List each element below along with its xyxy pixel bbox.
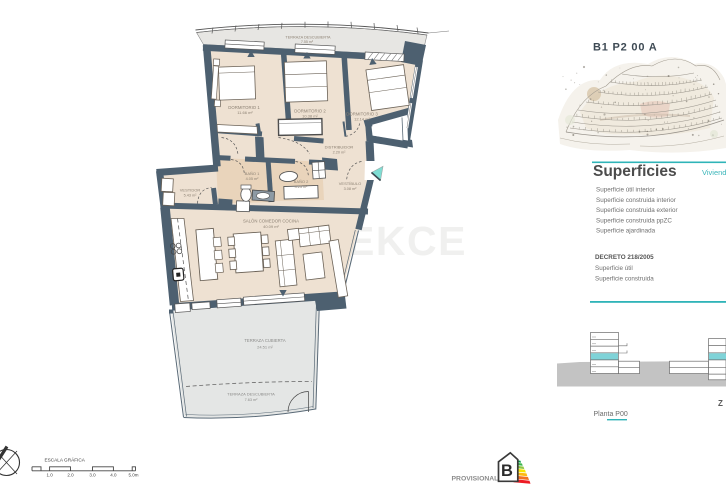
svg-text:Superficie construida exterior: Superficie construida exterior [596, 207, 678, 214]
svg-text:BAÑO 2: BAÑO 2 [294, 179, 309, 184]
svg-text:Superficie construida: Superficie construida [595, 275, 654, 282]
svg-text:40.09 m²: 40.09 m² [263, 224, 279, 229]
svg-text:Z: Z [718, 399, 723, 408]
svg-text:BAÑO 1: BAÑO 1 [245, 171, 260, 176]
svg-text:3.0: 3.0 [89, 473, 96, 478]
svg-text:B1 P2 00 A: B1 P2 00 A [593, 42, 657, 54]
svg-text:Viviend: Viviend [702, 168, 726, 177]
svg-text:5.43 m²: 5.43 m² [184, 194, 198, 198]
svg-text:Planta P00: Planta P00 [594, 411, 628, 418]
svg-text:24.51 m²: 24.51 m² [257, 345, 273, 350]
svg-text:VESTIDOR: VESTIDOR [180, 188, 201, 193]
svg-text:1.0: 1.0 [46, 473, 53, 478]
svg-text:ESCALA GRÁFICA: ESCALA GRÁFICA [45, 457, 86, 463]
svg-text:Superficie construida interior: Superficie construida interior [596, 197, 676, 204]
svg-text:4.23 m²: 4.23 m² [295, 185, 309, 189]
svg-text:3.08 m²: 3.08 m² [344, 187, 358, 191]
svg-text:Superficie construida ppZC: Superficie construida ppZC [596, 217, 672, 224]
svg-text:DISTRIBUIDOR: DISTRIBUIDOR [325, 145, 354, 150]
svg-text:VESTÍBULO: VESTÍBULO [339, 181, 361, 186]
svg-text:12.14 m²: 12.14 m² [354, 117, 370, 122]
svg-text:B: B [501, 462, 513, 480]
svg-text:Superficie útil: Superficie útil [595, 265, 633, 272]
svg-text:7.63 m²: 7.63 m² [245, 398, 259, 402]
svg-text:4.0: 4.0 [110, 473, 117, 478]
svg-text:Superficie ajardinada: Superficie ajardinada [596, 228, 656, 235]
svg-text:2.20 m²: 2.20 m² [333, 151, 347, 155]
svg-text:DECRETO 218/2005: DECRETO 218/2005 [595, 254, 654, 261]
svg-text:11.66 m²: 11.66 m² [237, 110, 253, 115]
svg-text:PROVISIONAL: PROVISIONAL [452, 476, 499, 483]
svg-text:EKCE: EKCE [347, 218, 467, 264]
svg-text:Superficie útil interior: Superficie útil interior [596, 187, 655, 194]
svg-text:10.38 m²: 10.38 m² [302, 114, 318, 119]
svg-text:Superficies: Superficies [593, 163, 677, 180]
svg-text:TERRAZA CUBIERTA: TERRAZA CUBIERTA [244, 338, 285, 343]
svg-text:2.0: 2.0 [67, 473, 74, 478]
svg-text:4.05 m²: 4.05 m² [246, 177, 260, 181]
svg-text:TERRAZA DESCUBIERTA: TERRAZA DESCUBIERTA [227, 392, 275, 397]
svg-text:SALÓN COMEDOR COCINA: SALÓN COMEDOR COCINA [243, 219, 299, 224]
svg-text:TERRAZA DESCUBIERTA: TERRAZA DESCUBIERTA [285, 36, 331, 40]
svg-text:7.55 m²: 7.55 m² [301, 40, 314, 44]
svg-text:5.0m: 5.0m [128, 473, 138, 478]
